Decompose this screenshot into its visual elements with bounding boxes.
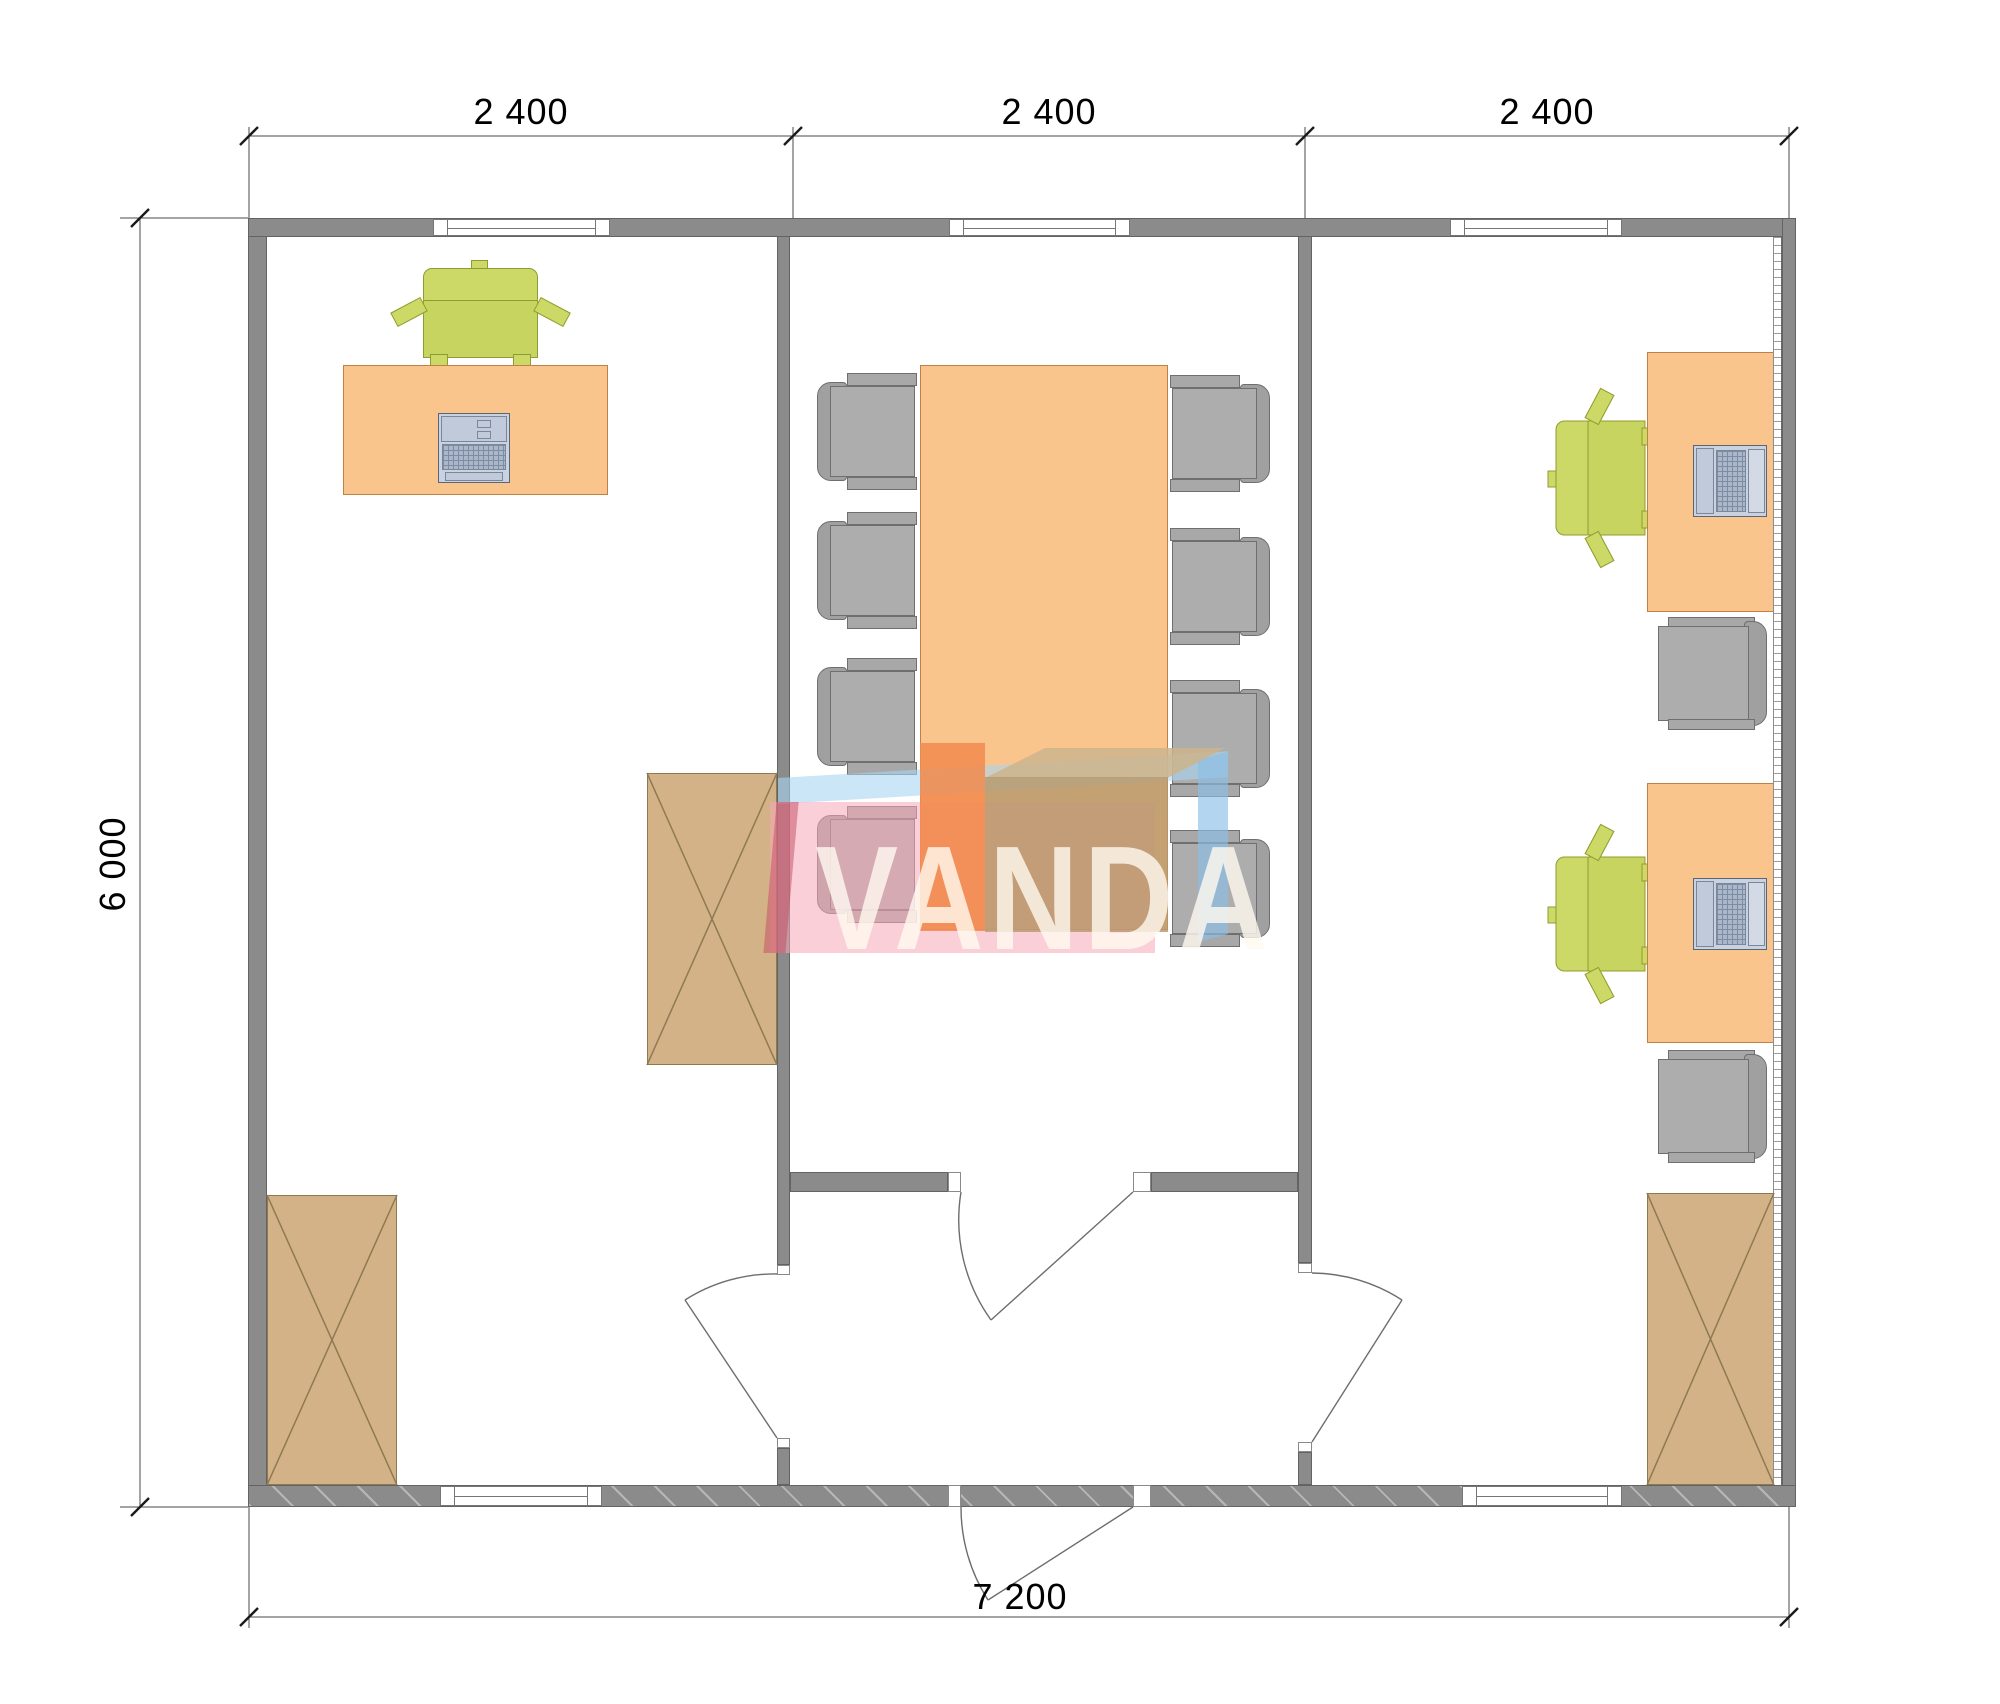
watermark-logo: VANDA (760, 740, 1240, 970)
door-swing-arc (685, 1274, 777, 1300)
door-leaf (1312, 1300, 1402, 1442)
door-leaf (991, 1192, 1133, 1320)
dim-label-top-2: 2 400 (949, 92, 1149, 132)
door-swing-arc (959, 1192, 991, 1320)
door-swing-arc (1312, 1273, 1402, 1300)
floor-plan: VANDA 2 400 2 400 2 400 6 000 7 200 (0, 0, 2000, 1704)
watermark-text: VANDA (815, 840, 1185, 960)
dim-label-top-3: 2 400 (1447, 92, 1647, 132)
dim-label-bottom: 7 200 (920, 1577, 1120, 1617)
dim-label-top-1: 2 400 (421, 92, 621, 132)
dim-label-left: 6 000 (93, 764, 133, 964)
door-leaf (685, 1300, 777, 1438)
